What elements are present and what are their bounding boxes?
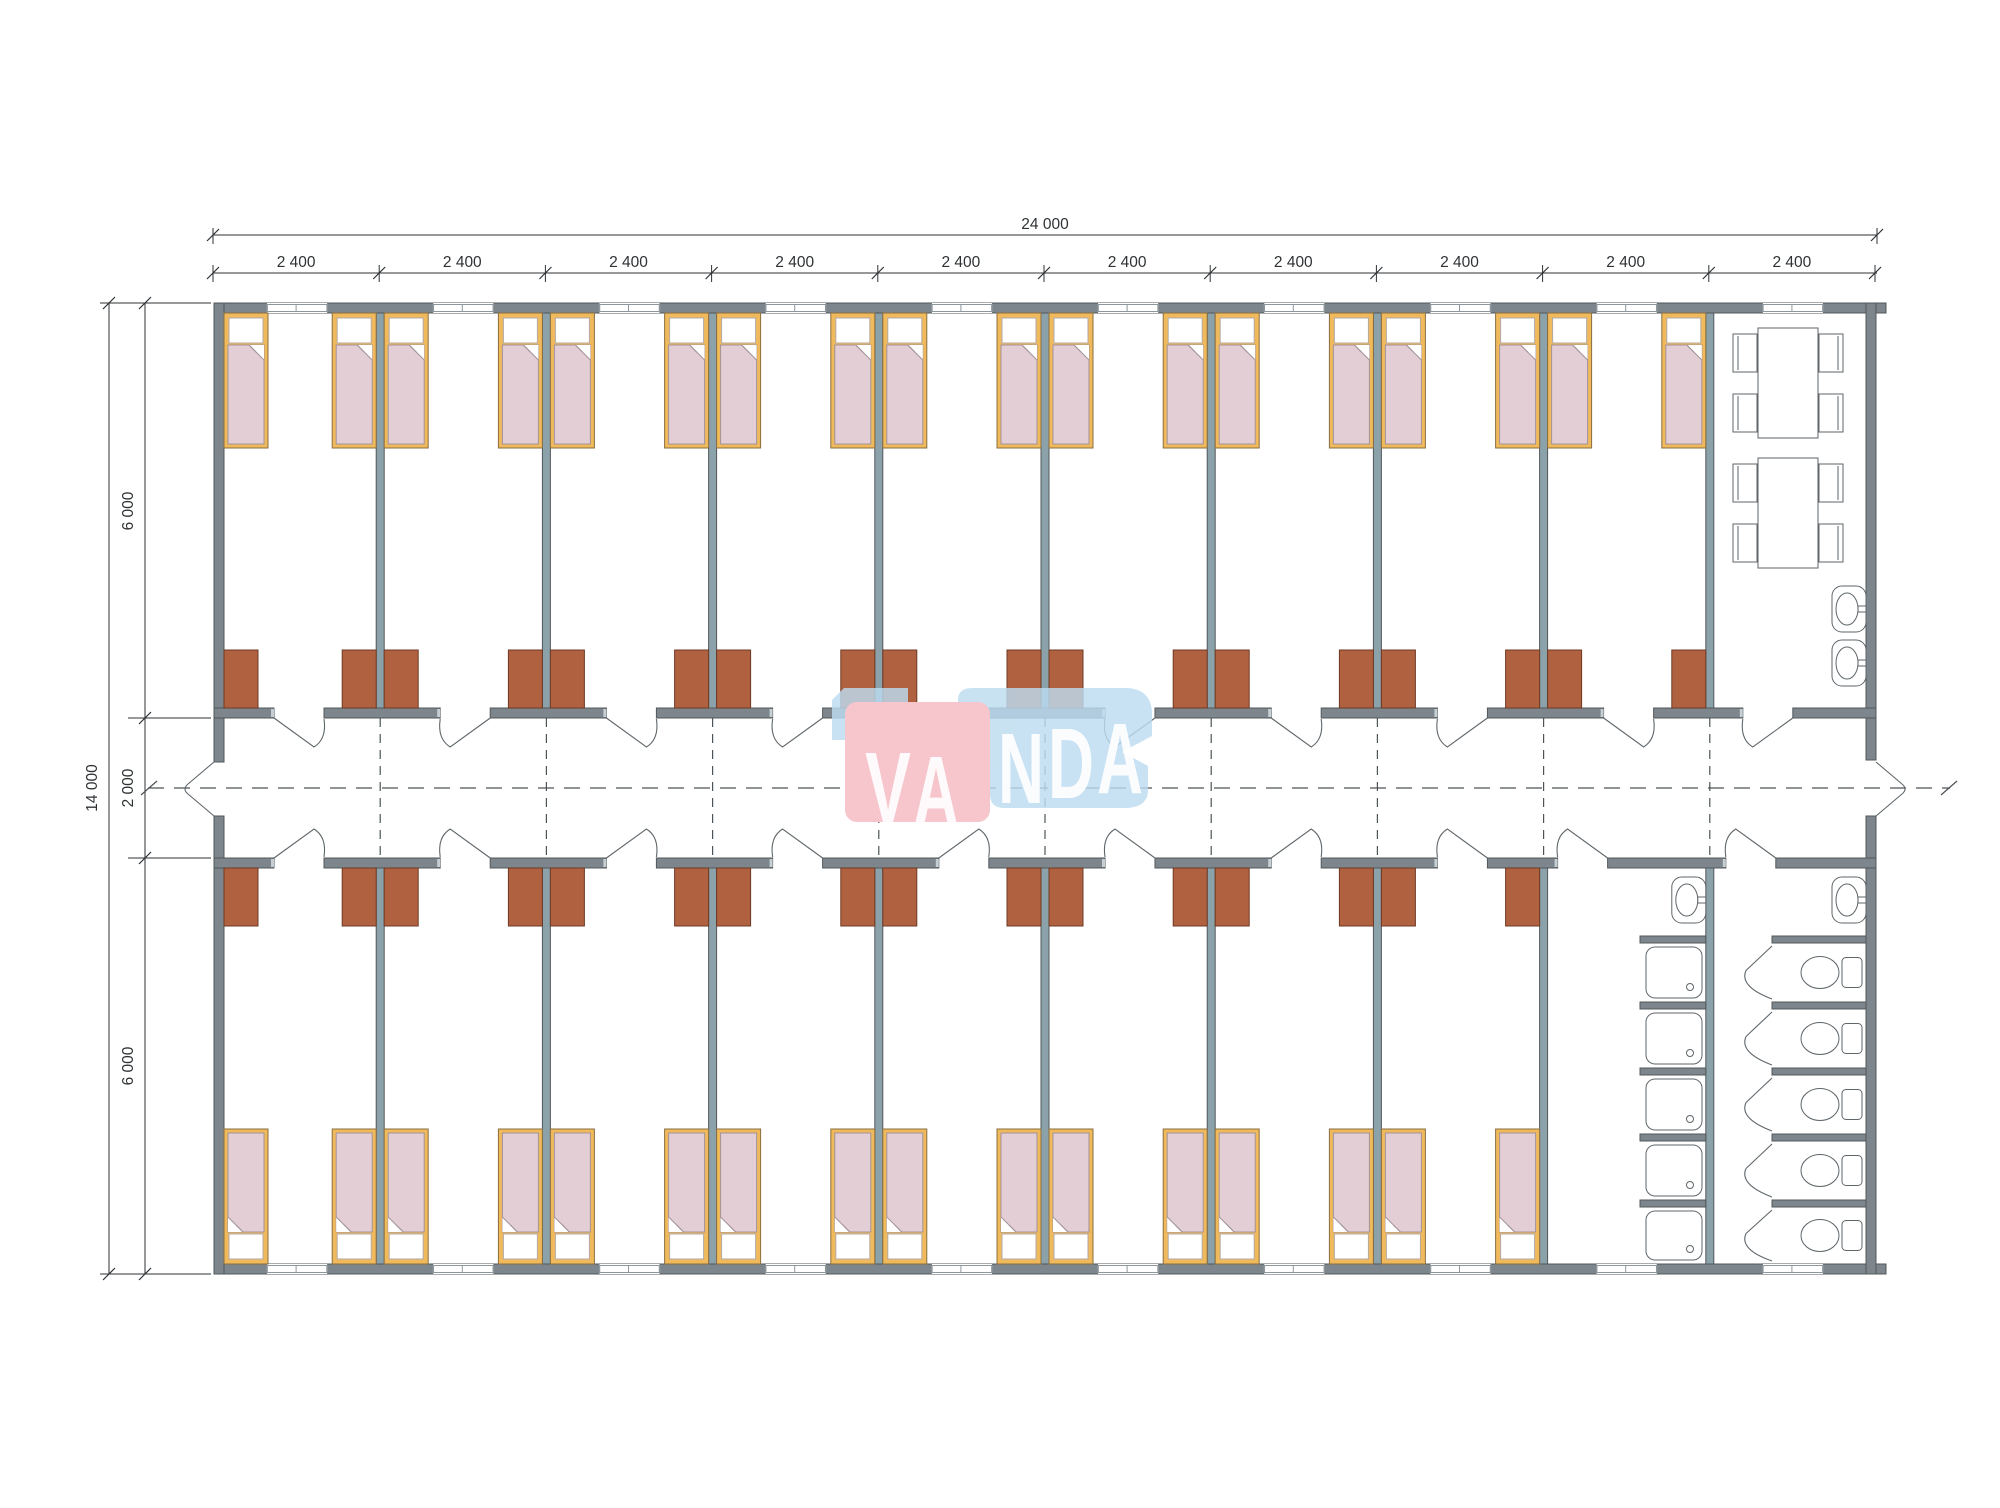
watermark-letter: A: [1097, 703, 1143, 815]
bed: [384, 1129, 428, 1264]
wardrobe: [1007, 868, 1041, 926]
bed: [550, 313, 594, 448]
stall-door: [1745, 1144, 1772, 1197]
svg-text:2 400: 2 400: [775, 254, 814, 271]
bed: [883, 1129, 927, 1264]
watermark-letter: A: [913, 736, 959, 848]
bed: [883, 313, 927, 448]
bed: [997, 313, 1041, 448]
bed: [665, 313, 709, 448]
stall-door: [1745, 1210, 1772, 1261]
bed: [1329, 1129, 1373, 1264]
sink: [1832, 877, 1866, 923]
wardrobe: [1049, 868, 1083, 926]
bed: [665, 1129, 709, 1264]
toilet: [1801, 1023, 1862, 1055]
dining-room: [1733, 328, 1866, 686]
svg-text:24 000: 24 000: [1021, 216, 1069, 233]
bed: [1163, 1129, 1207, 1264]
svg-text:2 400: 2 400: [1108, 254, 1147, 271]
wardrobe: [224, 650, 258, 708]
bed: [1381, 1129, 1425, 1264]
toilet: [1801, 1155, 1862, 1187]
floor-plan-canvas: 24 0002 4002 4002 4002 4002 4002 4002 40…: [0, 0, 2000, 1508]
wardrobe: [550, 650, 584, 708]
wardrobe: [1339, 868, 1373, 926]
bed: [717, 1129, 761, 1264]
svg-text:2 400: 2 400: [1773, 254, 1812, 271]
bed: [831, 313, 875, 448]
bed: [1496, 1129, 1540, 1264]
bed: [1381, 313, 1425, 448]
dining-table: [1733, 328, 1843, 438]
bed: [1548, 313, 1592, 448]
sink: [1672, 877, 1706, 923]
stall-door: [1745, 1012, 1772, 1065]
bed: [332, 1129, 376, 1264]
wardrobe: [1381, 650, 1415, 708]
wardrobe: [508, 868, 542, 926]
watermark-letter: D: [1048, 708, 1094, 820]
bed: [1215, 313, 1259, 448]
svg-text:2 400: 2 400: [1440, 254, 1479, 271]
wardrobe: [508, 650, 542, 708]
dining-table: [1733, 458, 1843, 568]
wardrobe: [1548, 650, 1582, 708]
wardrobe: [717, 868, 751, 926]
stall-door: [1745, 1078, 1772, 1131]
shower-tray: [1646, 1211, 1702, 1260]
wardrobe: [1672, 650, 1706, 708]
wardrobe: [550, 868, 584, 926]
wardrobe: [717, 650, 751, 708]
toilet-room: [1745, 877, 1866, 1261]
wardrobe: [384, 868, 418, 926]
floor-plan: 24 0002 4002 4002 4002 4002 4002 4002 40…: [0, 0, 2000, 1508]
shower-room: [1640, 877, 1706, 1260]
bed: [384, 313, 428, 448]
bed: [1496, 313, 1540, 448]
svg-text:2 400: 2 400: [277, 254, 316, 271]
svg-text:2 400: 2 400: [1274, 254, 1313, 271]
wardrobe: [1381, 868, 1415, 926]
wardrobe: [675, 650, 709, 708]
bed: [831, 1129, 875, 1264]
svg-text:2 400: 2 400: [942, 254, 981, 271]
svg-text:2 400: 2 400: [609, 254, 648, 271]
watermark-letter: V: [865, 732, 911, 844]
bed: [332, 313, 376, 448]
bed: [1163, 313, 1207, 448]
shower-tray: [1646, 1079, 1702, 1130]
bed: [997, 1129, 1041, 1264]
shower-tray: [1646, 1145, 1702, 1196]
stall-door: [1745, 946, 1772, 999]
wardrobe: [883, 868, 917, 926]
wardrobe: [675, 868, 709, 926]
shower-tray: [1646, 1013, 1702, 1064]
wardrobe: [1339, 650, 1373, 708]
sink: [1832, 586, 1866, 632]
bed: [1049, 1129, 1093, 1264]
wardrobe: [1215, 650, 1249, 708]
wardrobe: [1506, 650, 1540, 708]
bed: [224, 1129, 268, 1264]
bed: [1329, 313, 1373, 448]
svg-text:6 000: 6 000: [120, 491, 137, 530]
wardrobe: [1215, 868, 1249, 926]
wardrobe: [224, 868, 258, 926]
bed: [1215, 1129, 1259, 1264]
bed: [1662, 313, 1706, 448]
bed: [498, 1129, 542, 1264]
wardrobe: [342, 868, 376, 926]
svg-text:2 000: 2 000: [120, 768, 137, 807]
toilet: [1801, 1089, 1862, 1121]
svg-text:2 400: 2 400: [443, 254, 482, 271]
wardrobe: [342, 650, 376, 708]
svg-text:6 000: 6 000: [120, 1046, 137, 1085]
wardrobe: [841, 868, 875, 926]
sink: [1832, 640, 1866, 686]
shower-tray: [1646, 947, 1702, 998]
toilet: [1801, 1220, 1862, 1252]
svg-text:14 000: 14 000: [84, 764, 101, 812]
bed: [224, 313, 268, 448]
bed: [717, 313, 761, 448]
svg-text:2 400: 2 400: [1606, 254, 1645, 271]
bed: [550, 1129, 594, 1264]
bed: [498, 313, 542, 448]
bed: [1049, 313, 1093, 448]
watermark-letter: N: [998, 713, 1044, 825]
wardrobe: [1506, 868, 1540, 926]
watermark-logo: VANDA: [832, 688, 1152, 848]
wardrobe: [1173, 650, 1207, 708]
toilet: [1801, 957, 1862, 989]
wardrobe: [1173, 868, 1207, 926]
wardrobe: [384, 650, 418, 708]
